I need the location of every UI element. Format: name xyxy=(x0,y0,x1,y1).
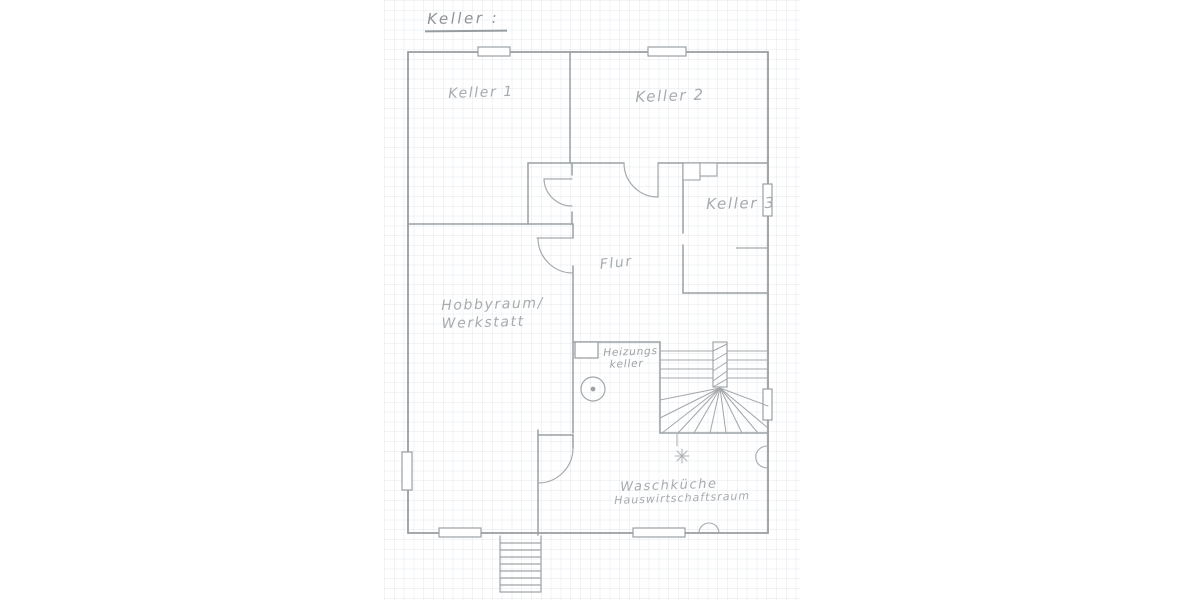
door-jamb-boxes xyxy=(683,163,717,180)
room-label-keller-2: Keller 2 xyxy=(635,86,705,106)
window-markers xyxy=(402,47,772,537)
wall-niche xyxy=(756,446,767,468)
boiler-circle xyxy=(581,377,605,401)
light-point-star xyxy=(675,433,689,463)
chimney-box xyxy=(575,342,598,358)
room-label-heizungskeller-line1: Heizungs xyxy=(603,345,658,359)
room-label-hobbyraum: Hobbyraum/ Werkstatt xyxy=(441,294,545,333)
room-label-keller-1: Keller 1 xyxy=(448,84,514,102)
winder-staircase xyxy=(660,342,768,433)
interior-walls xyxy=(408,52,768,535)
room-label-hobbyraum-line1: Hobbyraum/ xyxy=(441,295,544,314)
room-label-heizungskeller-line2: keller xyxy=(603,357,658,371)
room-label-keller-3: Keller 3 xyxy=(706,194,776,213)
page-title: Keller : xyxy=(427,9,499,28)
room-label-flur: Flur xyxy=(599,254,633,273)
exterior-basement-stairs xyxy=(500,536,541,592)
floorplan-scan: Keller : Keller 1 Keller 2 Keller 3 Flur… xyxy=(0,0,1200,600)
room-label-heizungskeller: Heizungs keller xyxy=(603,345,658,371)
bottom-wall-arch xyxy=(699,523,719,533)
room-label-hobbyraum-line2: Werkstatt xyxy=(441,314,524,332)
floor-plan-drawing xyxy=(0,0,1200,600)
